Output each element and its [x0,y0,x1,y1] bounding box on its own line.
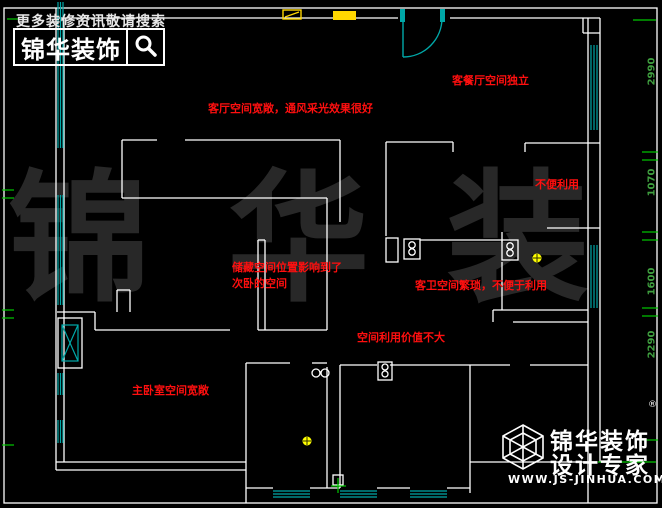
dimension-2290: 2290 [646,331,657,359]
annotation-living-room: 客厅空间宽敞，通风采光效果很好 [208,101,373,117]
dimension-1600: 1600 [646,268,657,296]
dimension-1070: 1070 [646,169,657,197]
cube-logo-icon [500,424,546,474]
header-logo-text: 锦华装饰 [15,30,121,65]
annotation-storage: 储藏空间位置影响到了 次卧的空间 [232,260,342,292]
search-icon [128,31,159,63]
annotation-space-value: 空间利用价值不大 [357,330,445,346]
annotation-dining-room: 客餐厅空间独立 [452,73,529,89]
registered-mark: ® [648,400,657,410]
brand-website: WWW.JS-JINHUA.COM [508,473,662,486]
header-logo-box: 锦华装饰 [13,28,165,66]
dimension-2990: 2990 [646,58,657,86]
annotation-inconvenient: 不便利用 [535,177,579,193]
floorplan-page: 锦 华 装 饰 [0,0,662,508]
entry-door-symbol [400,9,445,57]
annotation-master-bedroom: 主卧室空间宽敞 [132,383,209,399]
annotation-guest-bath: 客卫空间繁琐，不便于利用 [415,278,547,294]
